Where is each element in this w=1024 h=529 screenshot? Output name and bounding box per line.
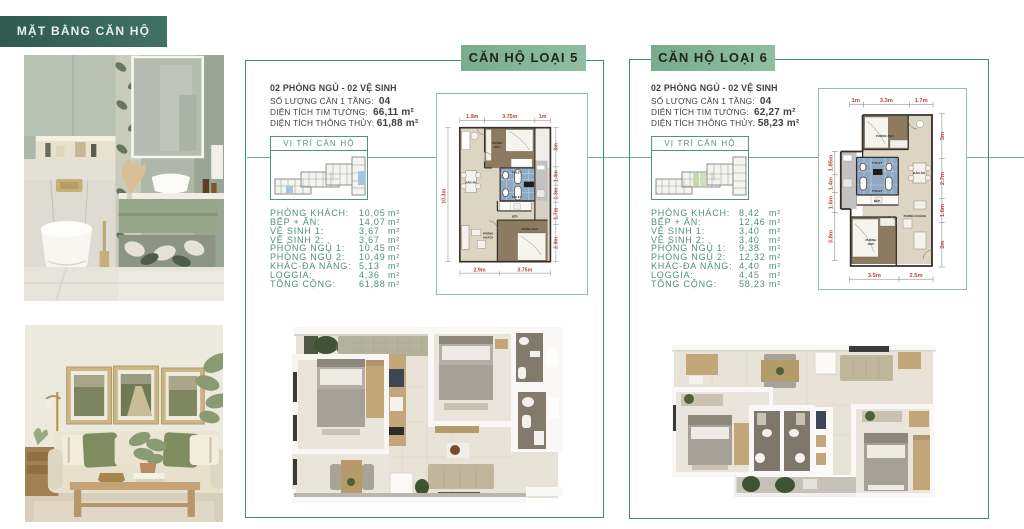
svg-text:10.3m: 10.3m [442, 188, 448, 203]
svg-text:1.6m: 1.6m [829, 196, 835, 209]
svg-text:1.4m: 1.4m [554, 170, 560, 182]
svg-text:BẾP: BẾP [874, 198, 880, 203]
svg-text:1m: 1m [852, 98, 860, 104]
svg-text:3.5m: 3.5m [868, 273, 881, 279]
svg-text:TOILET: TOILET [512, 195, 522, 199]
svg-text:3.3m: 3.3m [880, 98, 893, 104]
svg-text:1.85m: 1.85m [829, 155, 835, 171]
svg-text:PHÒNG KHÁCH: PHÒNG KHÁCH [904, 213, 927, 218]
svg-text:3m: 3m [940, 241, 946, 249]
svg-text:1.3m: 1.3m [554, 187, 560, 199]
svg-text:TOILET: TOILET [872, 161, 883, 165]
svg-text:1m: 1m [539, 114, 547, 120]
svg-text:1.9m: 1.9m [466, 114, 478, 120]
svg-text:3m: 3m [554, 143, 560, 151]
svg-text:BÀN ĂN: BÀN ĂN [913, 170, 925, 175]
svg-text:2.7m: 2.7m [940, 172, 946, 185]
svg-text:3.75m: 3.75m [517, 267, 532, 273]
svg-text:1.4m: 1.4m [829, 177, 835, 190]
svg-text:TOILET: TOILET [512, 170, 522, 174]
svg-text:2.9m: 2.9m [473, 267, 485, 273]
svg-text:1.7m: 1.7m [915, 98, 928, 104]
svg-text:TOILET: TOILET [872, 189, 883, 193]
svg-text:2.9m: 2.9m [554, 237, 560, 249]
svg-text:3m: 3m [940, 132, 946, 140]
svg-text:NGỦ: NGỦ [868, 241, 875, 246]
svg-text:3.8m: 3.8m [829, 230, 835, 243]
svg-text:1.7m: 1.7m [554, 207, 560, 219]
svg-text:2.5m: 2.5m [909, 273, 922, 279]
svg-text:3.75m: 3.75m [502, 114, 517, 120]
svg-text:PHÒNG NGỦ: PHÒNG NGỦ [876, 133, 895, 138]
svg-text:1.6m: 1.6m [940, 204, 946, 217]
